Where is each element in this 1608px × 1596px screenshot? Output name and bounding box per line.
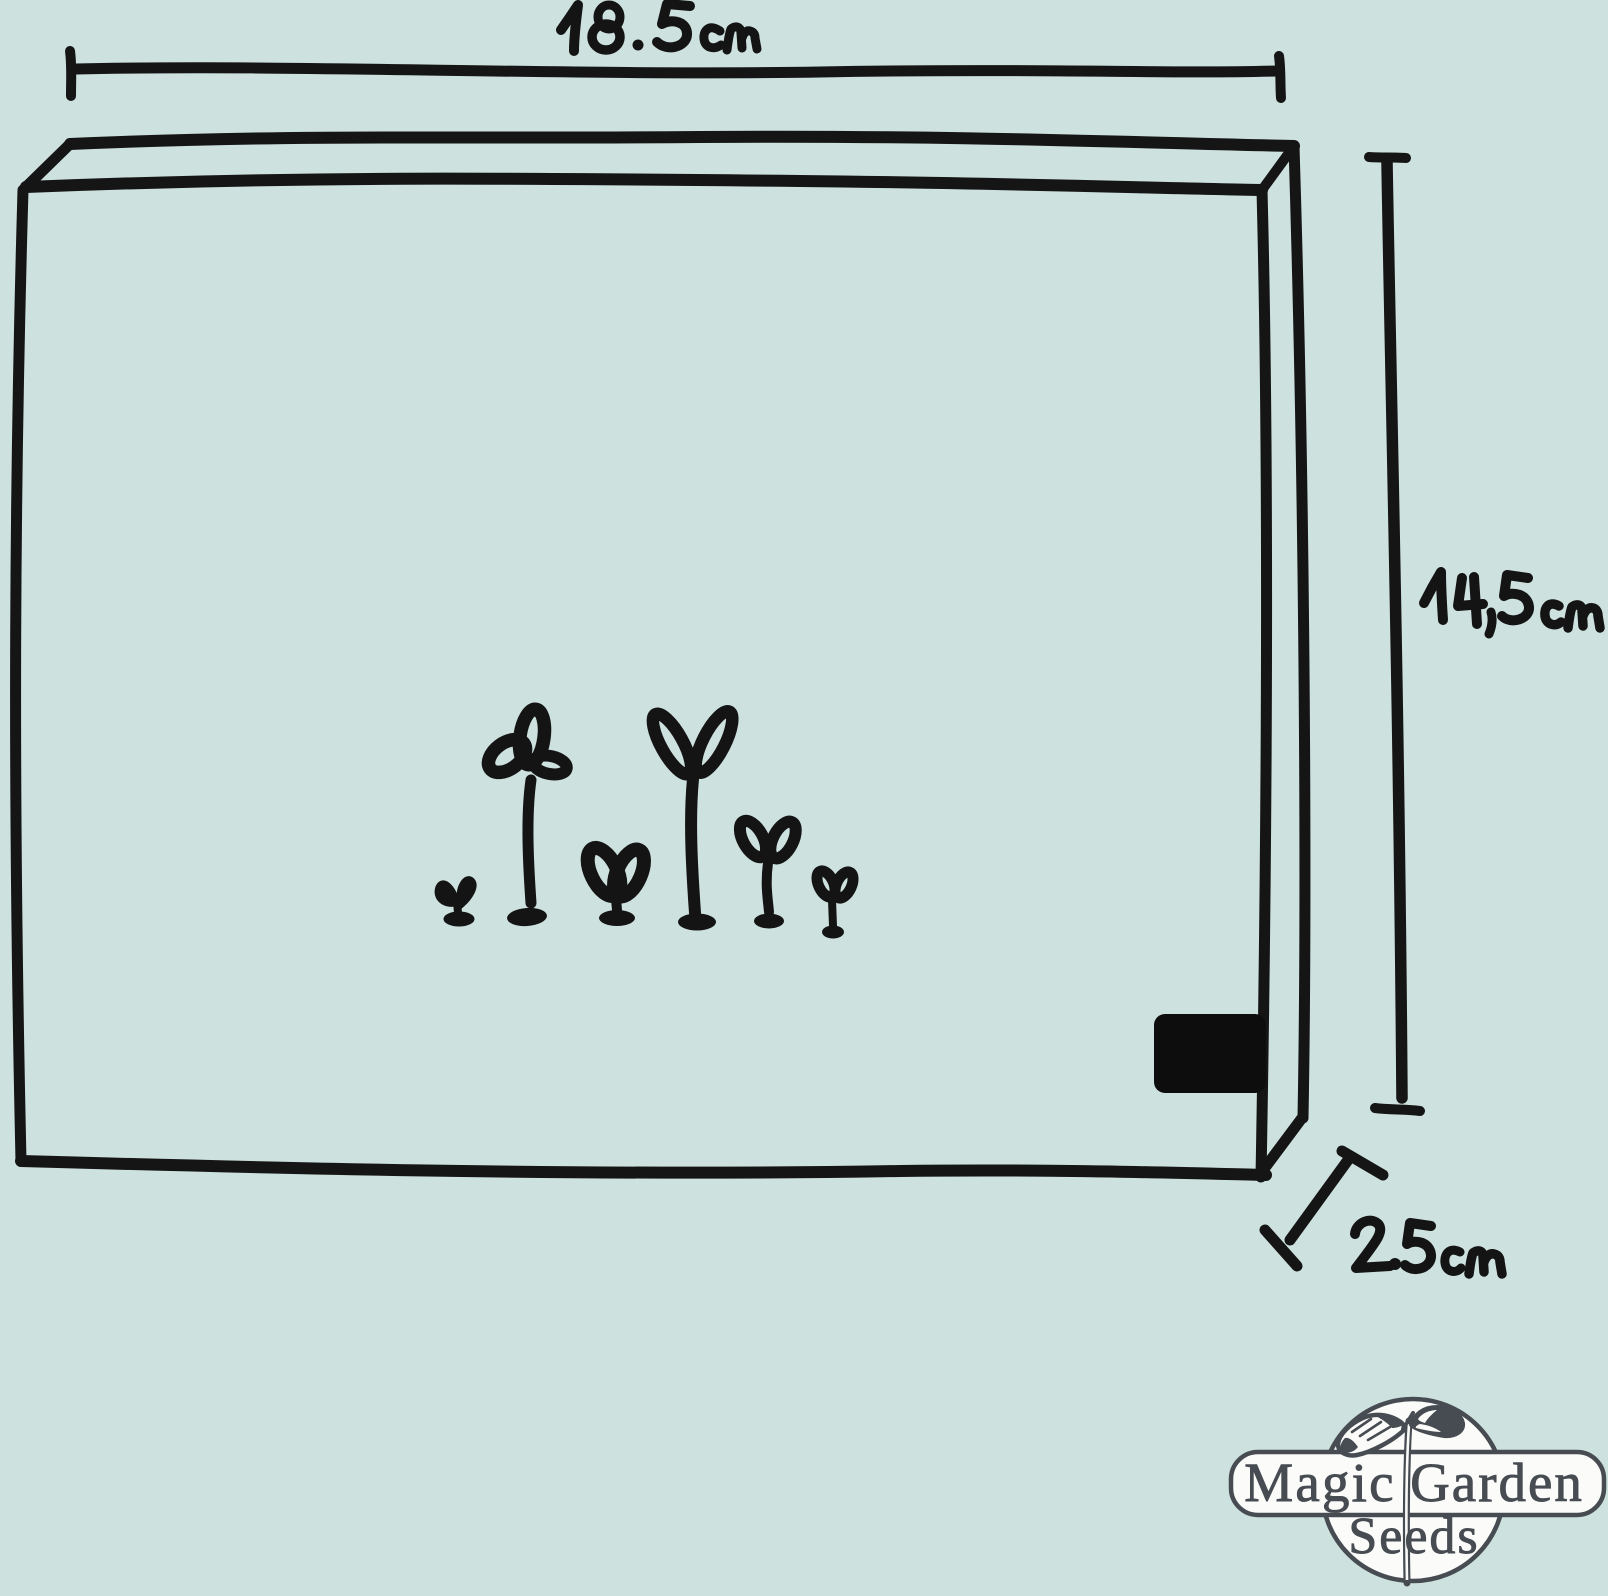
svg-text:Seeds: Seeds xyxy=(1348,1508,1479,1565)
svg-text:Magic: Magic xyxy=(1244,1452,1396,1513)
svg-text:Garden: Garden xyxy=(1410,1452,1584,1513)
